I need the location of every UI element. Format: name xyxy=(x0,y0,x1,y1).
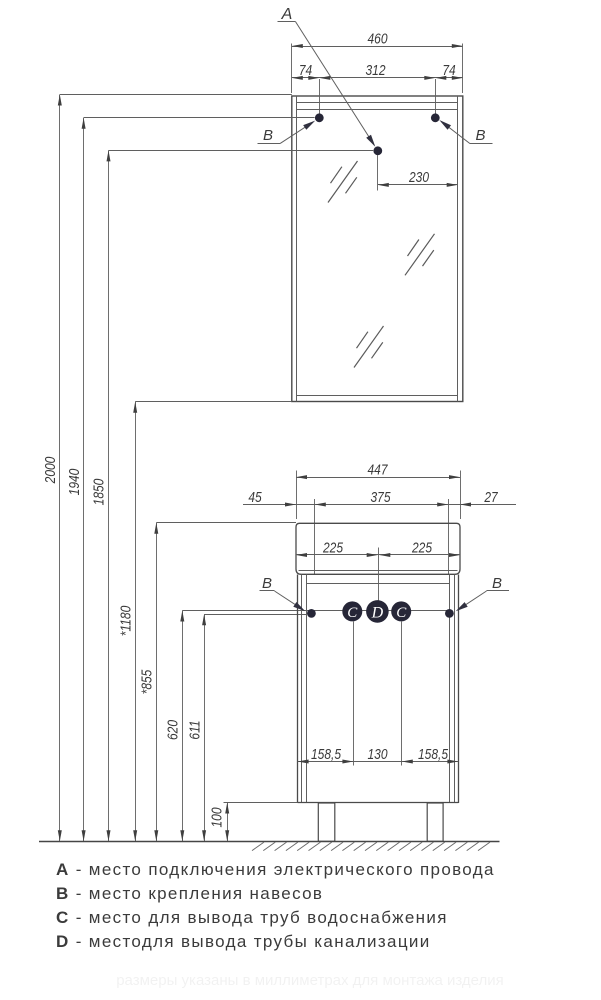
svg-text:74: 74 xyxy=(442,62,456,79)
svg-text:*855: *855 xyxy=(138,669,155,694)
svg-text:D: D xyxy=(371,604,384,621)
svg-text:375: 375 xyxy=(370,489,390,506)
svg-text:B: B xyxy=(262,575,272,592)
svg-text:27: 27 xyxy=(483,489,498,506)
svg-text:B: B xyxy=(263,127,273,144)
svg-text:A: A xyxy=(281,6,293,23)
svg-text:74: 74 xyxy=(299,62,313,79)
svg-text:2000: 2000 xyxy=(42,456,59,484)
svg-text:B: B xyxy=(492,575,502,592)
svg-text:D - местодля вывода трубы кана: D - местодля вывода трубы канализации xyxy=(56,932,431,951)
svg-text:225: 225 xyxy=(322,539,343,556)
svg-text:225: 225 xyxy=(411,539,432,556)
svg-text:A - место подключения электрич: A - место подключения электрического про… xyxy=(56,860,495,879)
svg-text:1850: 1850 xyxy=(90,478,107,505)
svg-text:312: 312 xyxy=(365,62,385,79)
svg-text:C - место для вывода труб водо: C - место для вывода труб водоснабжения xyxy=(56,908,448,927)
svg-text:B: B xyxy=(475,127,485,144)
svg-text:158,5: 158,5 xyxy=(418,746,448,763)
svg-text:*1180: *1180 xyxy=(117,605,134,636)
svg-text:158,5: 158,5 xyxy=(311,746,341,763)
svg-text:B - место крепления навесов: B - место крепления навесов xyxy=(56,884,323,903)
svg-text:1940: 1940 xyxy=(66,468,83,495)
svg-text:611: 611 xyxy=(186,720,203,739)
svg-text:100: 100 xyxy=(208,807,225,827)
svg-text:45: 45 xyxy=(248,489,262,506)
svg-text:C: C xyxy=(347,605,358,621)
svg-text:230: 230 xyxy=(408,169,429,186)
svg-text:460: 460 xyxy=(367,30,387,47)
svg-text:130: 130 xyxy=(367,746,387,763)
svg-text:C: C xyxy=(396,605,407,621)
svg-text:размеры указаны в миллиметрах: размеры указаны в миллиметрах для монтаж… xyxy=(116,972,504,989)
svg-text:447: 447 xyxy=(367,461,387,478)
svg-text:620: 620 xyxy=(164,720,181,740)
